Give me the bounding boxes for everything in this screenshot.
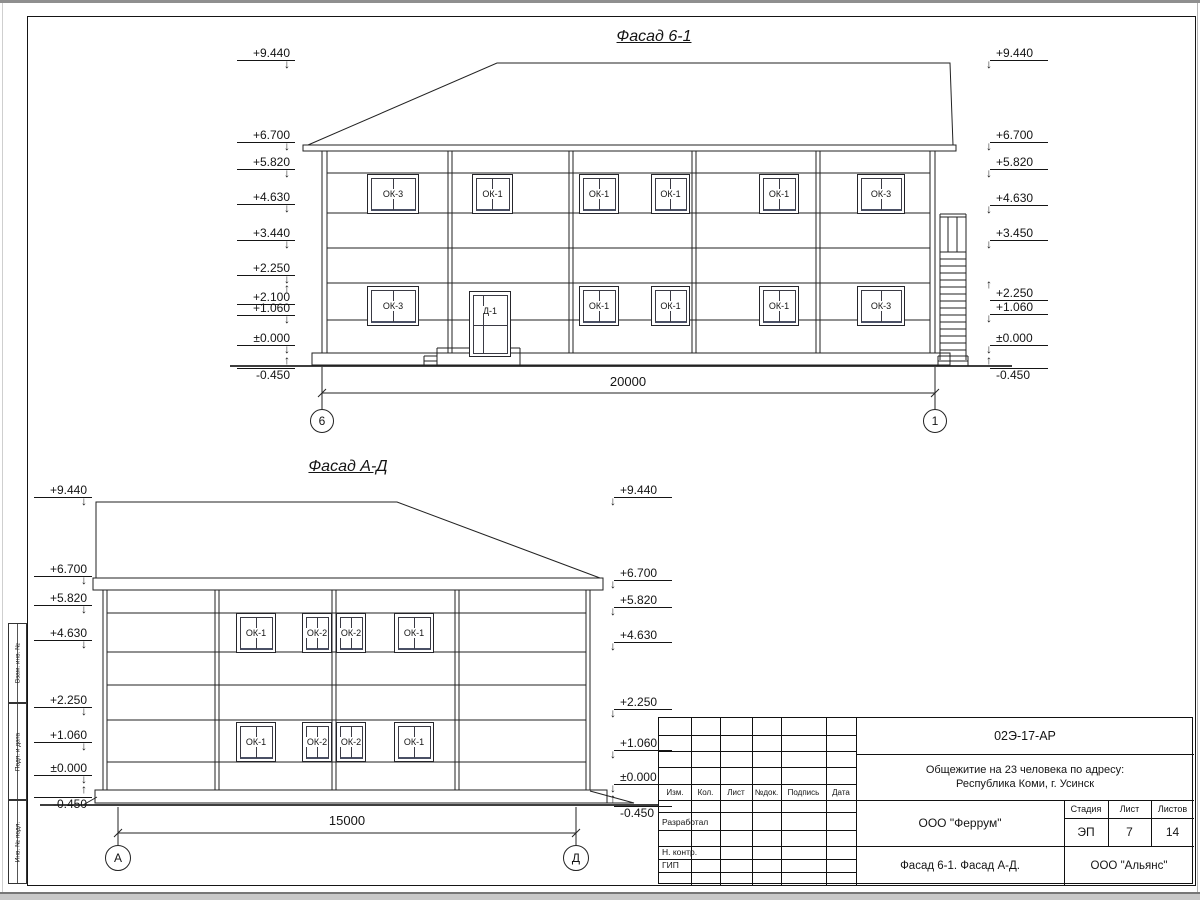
elevation-arrow-icon: ↓	[986, 239, 992, 250]
facade1-window: ОК-1	[579, 286, 619, 326]
tb-col-list: Лист	[720, 784, 752, 800]
facade1-elevation-mark: +3.450	[990, 227, 1048, 241]
window-label: ОК-1	[580, 189, 618, 199]
facade2-elevation-mark: +4.630	[614, 629, 672, 643]
elevation-arrow-icon: ↓	[610, 708, 616, 719]
elevation-arrow-icon: ↓	[81, 741, 87, 752]
tb-col-kol: Кол.	[691, 784, 720, 800]
facade2-elevation-mark: +1.060	[614, 737, 672, 751]
elevation-arrow-icon: ↓	[610, 606, 616, 617]
facade2-title: Фасад А-Д	[308, 458, 387, 476]
elevation-arrow-icon: ↓	[610, 579, 616, 590]
tb-stage-value: ЭП	[1064, 818, 1108, 846]
facade1-entrance-door: Д-1	[469, 291, 511, 357]
elevation-arrow-icon: ↓	[986, 59, 992, 70]
facade2-elevation-mark: -0.450	[614, 806, 672, 820]
window-label: ОК-1	[473, 189, 512, 199]
facade1-window: ОК-3	[367, 286, 419, 326]
facade2-elevation-mark: +5.820	[614, 594, 672, 608]
side-stamp-box-vzam: Взам. инв. №	[8, 623, 27, 703]
door-rail	[473, 325, 508, 326]
facade1-window: ОК-1	[472, 174, 513, 214]
window-label: ОК-1	[652, 189, 689, 199]
elevation-arrow-icon: ↓	[284, 203, 290, 214]
elevation-arrow-icon: ↑	[610, 793, 616, 804]
tb-row-developer: Разработал	[659, 814, 752, 830]
facade2-elevation-mark: +2.250	[614, 696, 672, 710]
elevation-arrow-icon: ↓	[81, 496, 87, 507]
window-label: ОК-3	[368, 189, 418, 199]
elevation-arrow-icon: ↓	[986, 141, 992, 152]
facade1-elevation-mark: +6.700	[990, 129, 1048, 143]
tb-sheet-content: Фасад 6-1. Фасад А-Д.	[856, 846, 1064, 885]
facade1-window: ОК-1	[759, 286, 799, 326]
tb-sheet-label: Лист	[1108, 800, 1151, 818]
window-label: ОК-1	[760, 189, 798, 199]
drawing-sheet: { "sheet": { "side_stamp": ["Взам. инв. …	[0, 0, 1200, 900]
facade1-elevation-mark: +9.440	[990, 47, 1048, 61]
elevation-arrow-icon: ↓	[284, 59, 290, 70]
window-label: ОК-1	[760, 301, 798, 311]
title-block: Изм. Кол. Лист №док. Подпись Дата Разраб…	[658, 717, 1193, 884]
elevation-arrow-icon: ↓	[986, 313, 992, 324]
window-label: ОК-1	[395, 628, 433, 638]
elevation-arrow-icon: ↓	[284, 168, 290, 179]
window-label: ОК-2	[303, 737, 331, 747]
window-label: ОК-1	[395, 737, 433, 747]
tb-sheets-label: Листов	[1151, 800, 1194, 818]
side-stamp-label: Подп. и дата	[14, 732, 21, 770]
tb-row-ncontrol: Н. контр.	[659, 846, 752, 859]
window-label: ОК-2	[337, 737, 365, 747]
elevation-arrow-icon: ↓	[986, 204, 992, 215]
facade1-elevation-mark: ±0.000	[990, 332, 1048, 346]
window-label: ОК-2	[303, 628, 331, 638]
tb-object-name: Общежитие на 23 человека по адресу: Респ…	[856, 754, 1194, 800]
facade2-elevation-mark: +9.440	[614, 484, 672, 498]
elevation-arrow-icon: ↓	[284, 239, 290, 250]
elevation-arrow-icon: ↓	[284, 314, 290, 325]
facade2-window: ОК-1	[236, 613, 276, 653]
facade1-window: ОК-3	[857, 174, 905, 214]
elevation-arrow-icon: ↑	[284, 355, 290, 366]
tb-col-data: Дата	[826, 784, 856, 800]
elevation-arrow-icon: ↓	[610, 749, 616, 760]
window-label: ОК-1	[237, 628, 275, 638]
elevation-arrow-icon: ↑	[986, 279, 992, 290]
facade1-elevation-mark: +1.060	[990, 301, 1048, 315]
facade1-window: ОК-3	[857, 286, 905, 326]
facade1-dimension-label: 20000	[610, 374, 646, 389]
door-mullion	[483, 295, 484, 354]
facade2-window: ОК-1	[394, 722, 434, 762]
facade1-title: Фасад 6-1	[617, 28, 692, 46]
window-label: ОК-3	[368, 301, 418, 311]
tb-object-line1: Общежитие на 23 человека по адресу:	[926, 763, 1124, 777]
tb-stage-label: Стадия	[1064, 800, 1108, 818]
facade2-axis-bubble: А	[105, 845, 131, 871]
side-stamp-label: Взам. инв. №	[14, 643, 21, 683]
elevation-arrow-icon: ↑	[81, 784, 87, 795]
window-label: ОК-3	[858, 301, 904, 311]
facade2-elevation-mark: ±0.000	[614, 771, 672, 785]
window-label: ОК-3	[858, 189, 904, 199]
facade2-axis-bubble: Д	[563, 845, 589, 871]
elevation-arrow-icon: ↑	[284, 283, 290, 294]
door-label: Д-1	[470, 306, 510, 316]
elevation-arrow-icon: ↓	[81, 706, 87, 717]
facade2-window: ОК-1	[394, 613, 434, 653]
tb-designer-org: ООО "Феррум"	[856, 800, 1064, 846]
facade1-axis-bubble: 1	[923, 409, 947, 433]
side-stamp-box-podp: Подп. и дата	[8, 703, 27, 800]
facade2-elevation-mark: -0.450	[34, 797, 92, 811]
facade1-window: ОК-1	[579, 174, 619, 214]
facade2-window: ОК-1	[236, 722, 276, 762]
window-label: ОК-1	[237, 737, 275, 747]
facade2-window: ОК-2	[302, 722, 332, 762]
tb-col-ndok: №док.	[752, 784, 781, 800]
facade1-window: ОК-3	[367, 174, 419, 214]
facade1-window: ОК-1	[651, 286, 690, 326]
facade2-elevation-mark: +6.700	[614, 567, 672, 581]
tb-col-izm: Изм.	[659, 784, 691, 800]
tb-col-podpis: Подпись	[781, 784, 826, 800]
facade2-window: ОК-2	[336, 722, 366, 762]
elevation-arrow-icon: ↓	[81, 639, 87, 650]
elevation-arrow-icon: ↓	[284, 141, 290, 152]
facade1-elevation-mark: -0.450	[990, 368, 1048, 382]
window-label: ОК-1	[652, 301, 689, 311]
tb-row-gip: ГИП	[659, 859, 752, 872]
tb-sheets-value: 14	[1151, 818, 1194, 846]
elevation-arrow-icon: ↑	[986, 355, 992, 366]
tb-object-line2: Республика Коми, г. Усинск	[956, 777, 1094, 791]
facade1-elevation-mark: +4.630	[990, 192, 1048, 206]
facade2-window: ОК-2	[336, 613, 366, 653]
side-stamp-box-inv: Инв. № подл.	[8, 800, 27, 884]
tb-client-org: ООО "Альянс"	[1064, 846, 1194, 885]
window-label: ОК-1	[580, 301, 618, 311]
facade1-elevation-mark: +5.820	[990, 156, 1048, 170]
elevation-arrow-icon: ↓	[81, 604, 87, 615]
facade1-elevation-mark: -0.450	[237, 368, 295, 382]
door-frame-inner	[473, 295, 508, 354]
elevation-arrow-icon: ↓	[610, 496, 616, 507]
window-label: ОК-2	[337, 628, 365, 638]
facade2-dimension-label: 15000	[329, 813, 365, 828]
elevation-arrow-icon: ↓	[986, 168, 992, 179]
side-stamp-label: Инв. № подл.	[14, 822, 21, 863]
facade2-window: ОК-2	[302, 613, 332, 653]
elevation-arrow-icon: ↓	[610, 641, 616, 652]
tb-sheet-value: 7	[1108, 818, 1151, 846]
facade1-axis-bubble: 6	[310, 409, 334, 433]
facade1-elevation-mark: +2.250	[990, 287, 1048, 301]
elevation-arrow-icon: ↓	[81, 575, 87, 586]
facade1-window: ОК-1	[651, 174, 690, 214]
tb-document-code: 02Э-17-АР	[856, 718, 1194, 754]
facade1-window: ОК-1	[759, 174, 799, 214]
